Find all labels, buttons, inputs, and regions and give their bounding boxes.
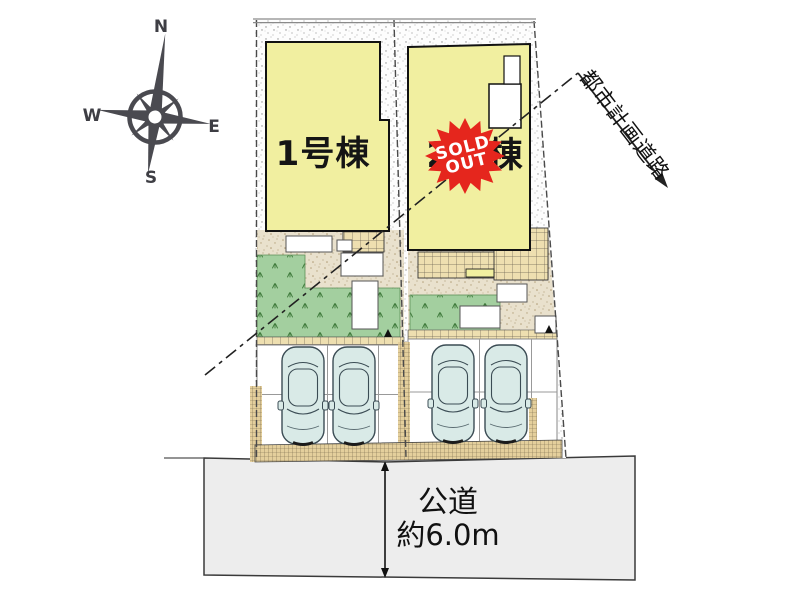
compass-south-label: S <box>145 168 157 188</box>
car-4 <box>481 345 531 443</box>
road-name: 公道 <box>348 486 548 519</box>
road-label: 公道 約6.0m <box>348 486 548 551</box>
compass-rose-icon <box>90 27 220 181</box>
compass-north-label: N <box>154 17 168 37</box>
car-2 <box>329 347 379 445</box>
car-3 <box>428 345 478 443</box>
compass-west-label: W <box>83 106 102 126</box>
site-plan: N W E S 1号棟 2号棟 SOLD OUT 都市計画道路 公道 約6.0m <box>0 0 800 601</box>
car-1 <box>278 347 328 445</box>
building-1-label: 1号棟 <box>266 126 380 175</box>
compass-east-label: E <box>208 117 220 137</box>
sold-out-badge: SOLD OUT <box>425 118 505 194</box>
road-width-value: 約6.0m <box>348 519 548 551</box>
